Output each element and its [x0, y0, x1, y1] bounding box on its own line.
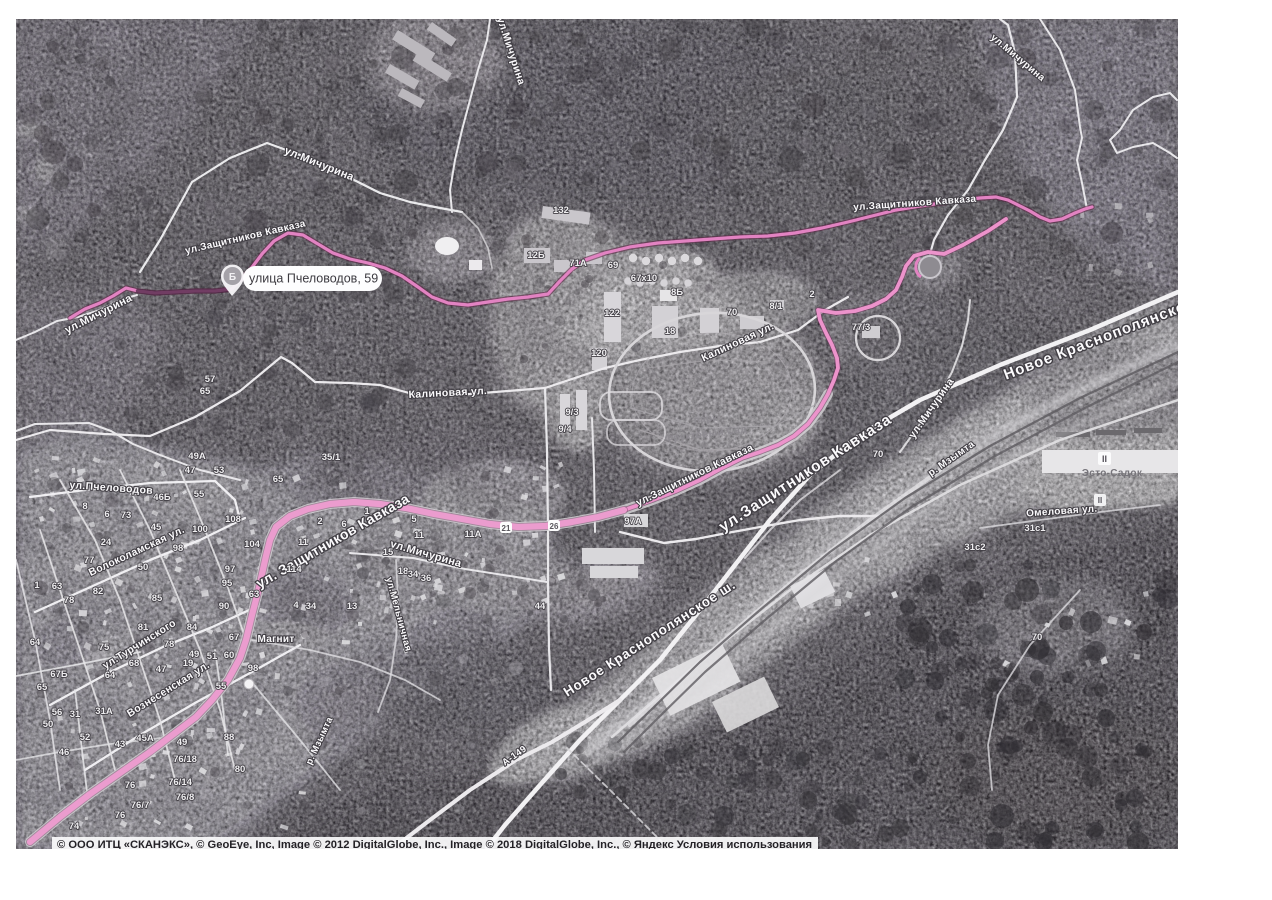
- svg-text:47: 47: [185, 465, 196, 476]
- svg-text:4: 4: [293, 600, 299, 611]
- svg-text:63: 63: [52, 581, 63, 592]
- svg-text:77/3: 77/3: [852, 322, 871, 333]
- svg-text:36: 36: [421, 573, 432, 584]
- svg-text:75: 75: [99, 642, 110, 653]
- svg-text:71А: 71А: [569, 258, 587, 269]
- svg-text:80: 80: [235, 764, 246, 775]
- svg-text:8/1: 8/1: [769, 301, 783, 312]
- svg-text:64: 64: [30, 637, 41, 648]
- svg-text:78: 78: [64, 595, 75, 606]
- svg-text:82: 82: [93, 586, 104, 597]
- svg-text:52: 52: [80, 732, 91, 743]
- svg-text:11: 11: [414, 530, 425, 541]
- svg-text:53: 53: [214, 465, 225, 476]
- svg-text:70: 70: [873, 449, 884, 460]
- svg-text:76: 76: [125, 780, 136, 791]
- svg-text:67Б: 67Б: [50, 669, 68, 680]
- svg-text:19: 19: [183, 658, 194, 669]
- svg-text:68: 68: [129, 658, 140, 669]
- svg-text:97: 97: [225, 564, 236, 575]
- svg-text:8Б: 8Б: [671, 287, 683, 298]
- svg-text:67: 67: [229, 632, 240, 643]
- svg-text:18: 18: [665, 326, 676, 337]
- svg-text:67х10: 67х10: [631, 273, 657, 284]
- svg-text:90: 90: [219, 601, 230, 612]
- svg-text:45А: 45А: [136, 733, 154, 744]
- svg-text:64: 64: [105, 670, 116, 681]
- svg-text:70: 70: [727, 307, 738, 318]
- svg-text:21: 21: [502, 524, 511, 533]
- svg-text:60: 60: [224, 650, 235, 661]
- svg-text:улица Пчеловодов, 59: улица Пчеловодов, 59: [249, 272, 378, 286]
- svg-text:34: 34: [306, 601, 317, 612]
- svg-text:97А: 97А: [624, 516, 642, 527]
- svg-text:65: 65: [37, 682, 48, 693]
- svg-text:II: II: [1102, 454, 1107, 464]
- svg-text:44: 44: [535, 601, 546, 612]
- svg-text:Б: Б: [229, 272, 236, 283]
- svg-text:63: 63: [249, 589, 260, 600]
- svg-text:76/7: 76/7: [131, 800, 150, 811]
- svg-text:11А: 11А: [465, 529, 482, 540]
- svg-text:114: 114: [286, 564, 302, 575]
- svg-text:120: 120: [591, 348, 607, 359]
- svg-text:31А: 31А: [95, 706, 113, 717]
- svg-text:55: 55: [216, 681, 227, 692]
- svg-text:6: 6: [341, 519, 346, 530]
- svg-text:2: 2: [317, 516, 322, 527]
- svg-text:34: 34: [408, 569, 419, 580]
- svg-text:84: 84: [187, 622, 198, 633]
- svg-text:95: 95: [222, 578, 233, 589]
- svg-text:65: 65: [200, 386, 211, 397]
- svg-text:122: 122: [604, 308, 620, 319]
- svg-text:73: 73: [121, 510, 132, 521]
- svg-text:8: 8: [82, 501, 87, 512]
- svg-text:88: 88: [224, 732, 235, 743]
- svg-text:69: 69: [608, 260, 619, 271]
- svg-text:© ООО ИТЦ «СКАНЭКС», © GeoEye,: © ООО ИТЦ «СКАНЭКС», © GeoEye, Inc, Imag…: [57, 839, 812, 851]
- svg-text:26: 26: [550, 522, 559, 531]
- svg-text:11: 11: [298, 537, 309, 548]
- svg-text:9/4: 9/4: [558, 424, 572, 435]
- svg-text:98: 98: [173, 543, 184, 554]
- svg-text:35/1: 35/1: [322, 452, 341, 463]
- svg-text:Эсто-Садок: Эсто-Садок: [1082, 468, 1143, 479]
- svg-text:108: 108: [225, 514, 241, 525]
- svg-text:31: 31: [70, 709, 81, 720]
- svg-text:76/14: 76/14: [168, 777, 192, 788]
- svg-text:100: 100: [192, 524, 208, 535]
- svg-text:50: 50: [43, 719, 54, 730]
- svg-text:51: 51: [207, 651, 218, 662]
- svg-text:46Б: 46Б: [153, 492, 171, 503]
- svg-text:104: 104: [244, 539, 261, 550]
- svg-text:Магнит: Магнит: [257, 634, 294, 645]
- svg-text:74: 74: [69, 821, 80, 832]
- svg-text:78: 78: [164, 639, 175, 650]
- svg-text:98: 98: [248, 663, 259, 674]
- svg-text:15: 15: [383, 547, 394, 558]
- svg-text:31с2: 31с2: [964, 542, 985, 553]
- svg-text:76/18: 76/18: [173, 754, 197, 765]
- svg-text:1: 1: [34, 580, 40, 591]
- svg-text:49А: 49А: [188, 451, 206, 462]
- svg-text:85: 85: [152, 593, 163, 604]
- svg-text:76/8: 76/8: [176, 792, 195, 803]
- svg-text:55: 55: [194, 489, 205, 500]
- svg-text:43: 43: [115, 739, 126, 750]
- svg-text:6: 6: [104, 509, 109, 520]
- svg-text:18: 18: [398, 566, 409, 577]
- svg-text:II: II: [1098, 496, 1102, 505]
- svg-text:45: 45: [151, 522, 162, 533]
- svg-text:46: 46: [59, 747, 70, 758]
- svg-text:12Б: 12Б: [527, 250, 545, 261]
- svg-text:77: 77: [84, 555, 95, 566]
- svg-text:47: 47: [156, 664, 167, 675]
- svg-text:65: 65: [273, 474, 284, 485]
- svg-text:31с1: 31с1: [1024, 523, 1046, 534]
- svg-text:50: 50: [138, 562, 149, 573]
- svg-text:81: 81: [138, 622, 149, 633]
- svg-text:132: 132: [553, 205, 569, 216]
- svg-text:2: 2: [809, 289, 814, 300]
- svg-text:76: 76: [115, 810, 126, 821]
- svg-text:56: 56: [52, 707, 63, 718]
- svg-text:57: 57: [205, 374, 216, 385]
- svg-text:1: 1: [364, 506, 370, 517]
- svg-text:5: 5: [411, 514, 417, 525]
- svg-text:24: 24: [101, 537, 112, 548]
- svg-text:9/3: 9/3: [565, 407, 578, 418]
- svg-text:49: 49: [177, 737, 188, 748]
- svg-text:70: 70: [1032, 632, 1043, 643]
- svg-text:13: 13: [347, 601, 358, 612]
